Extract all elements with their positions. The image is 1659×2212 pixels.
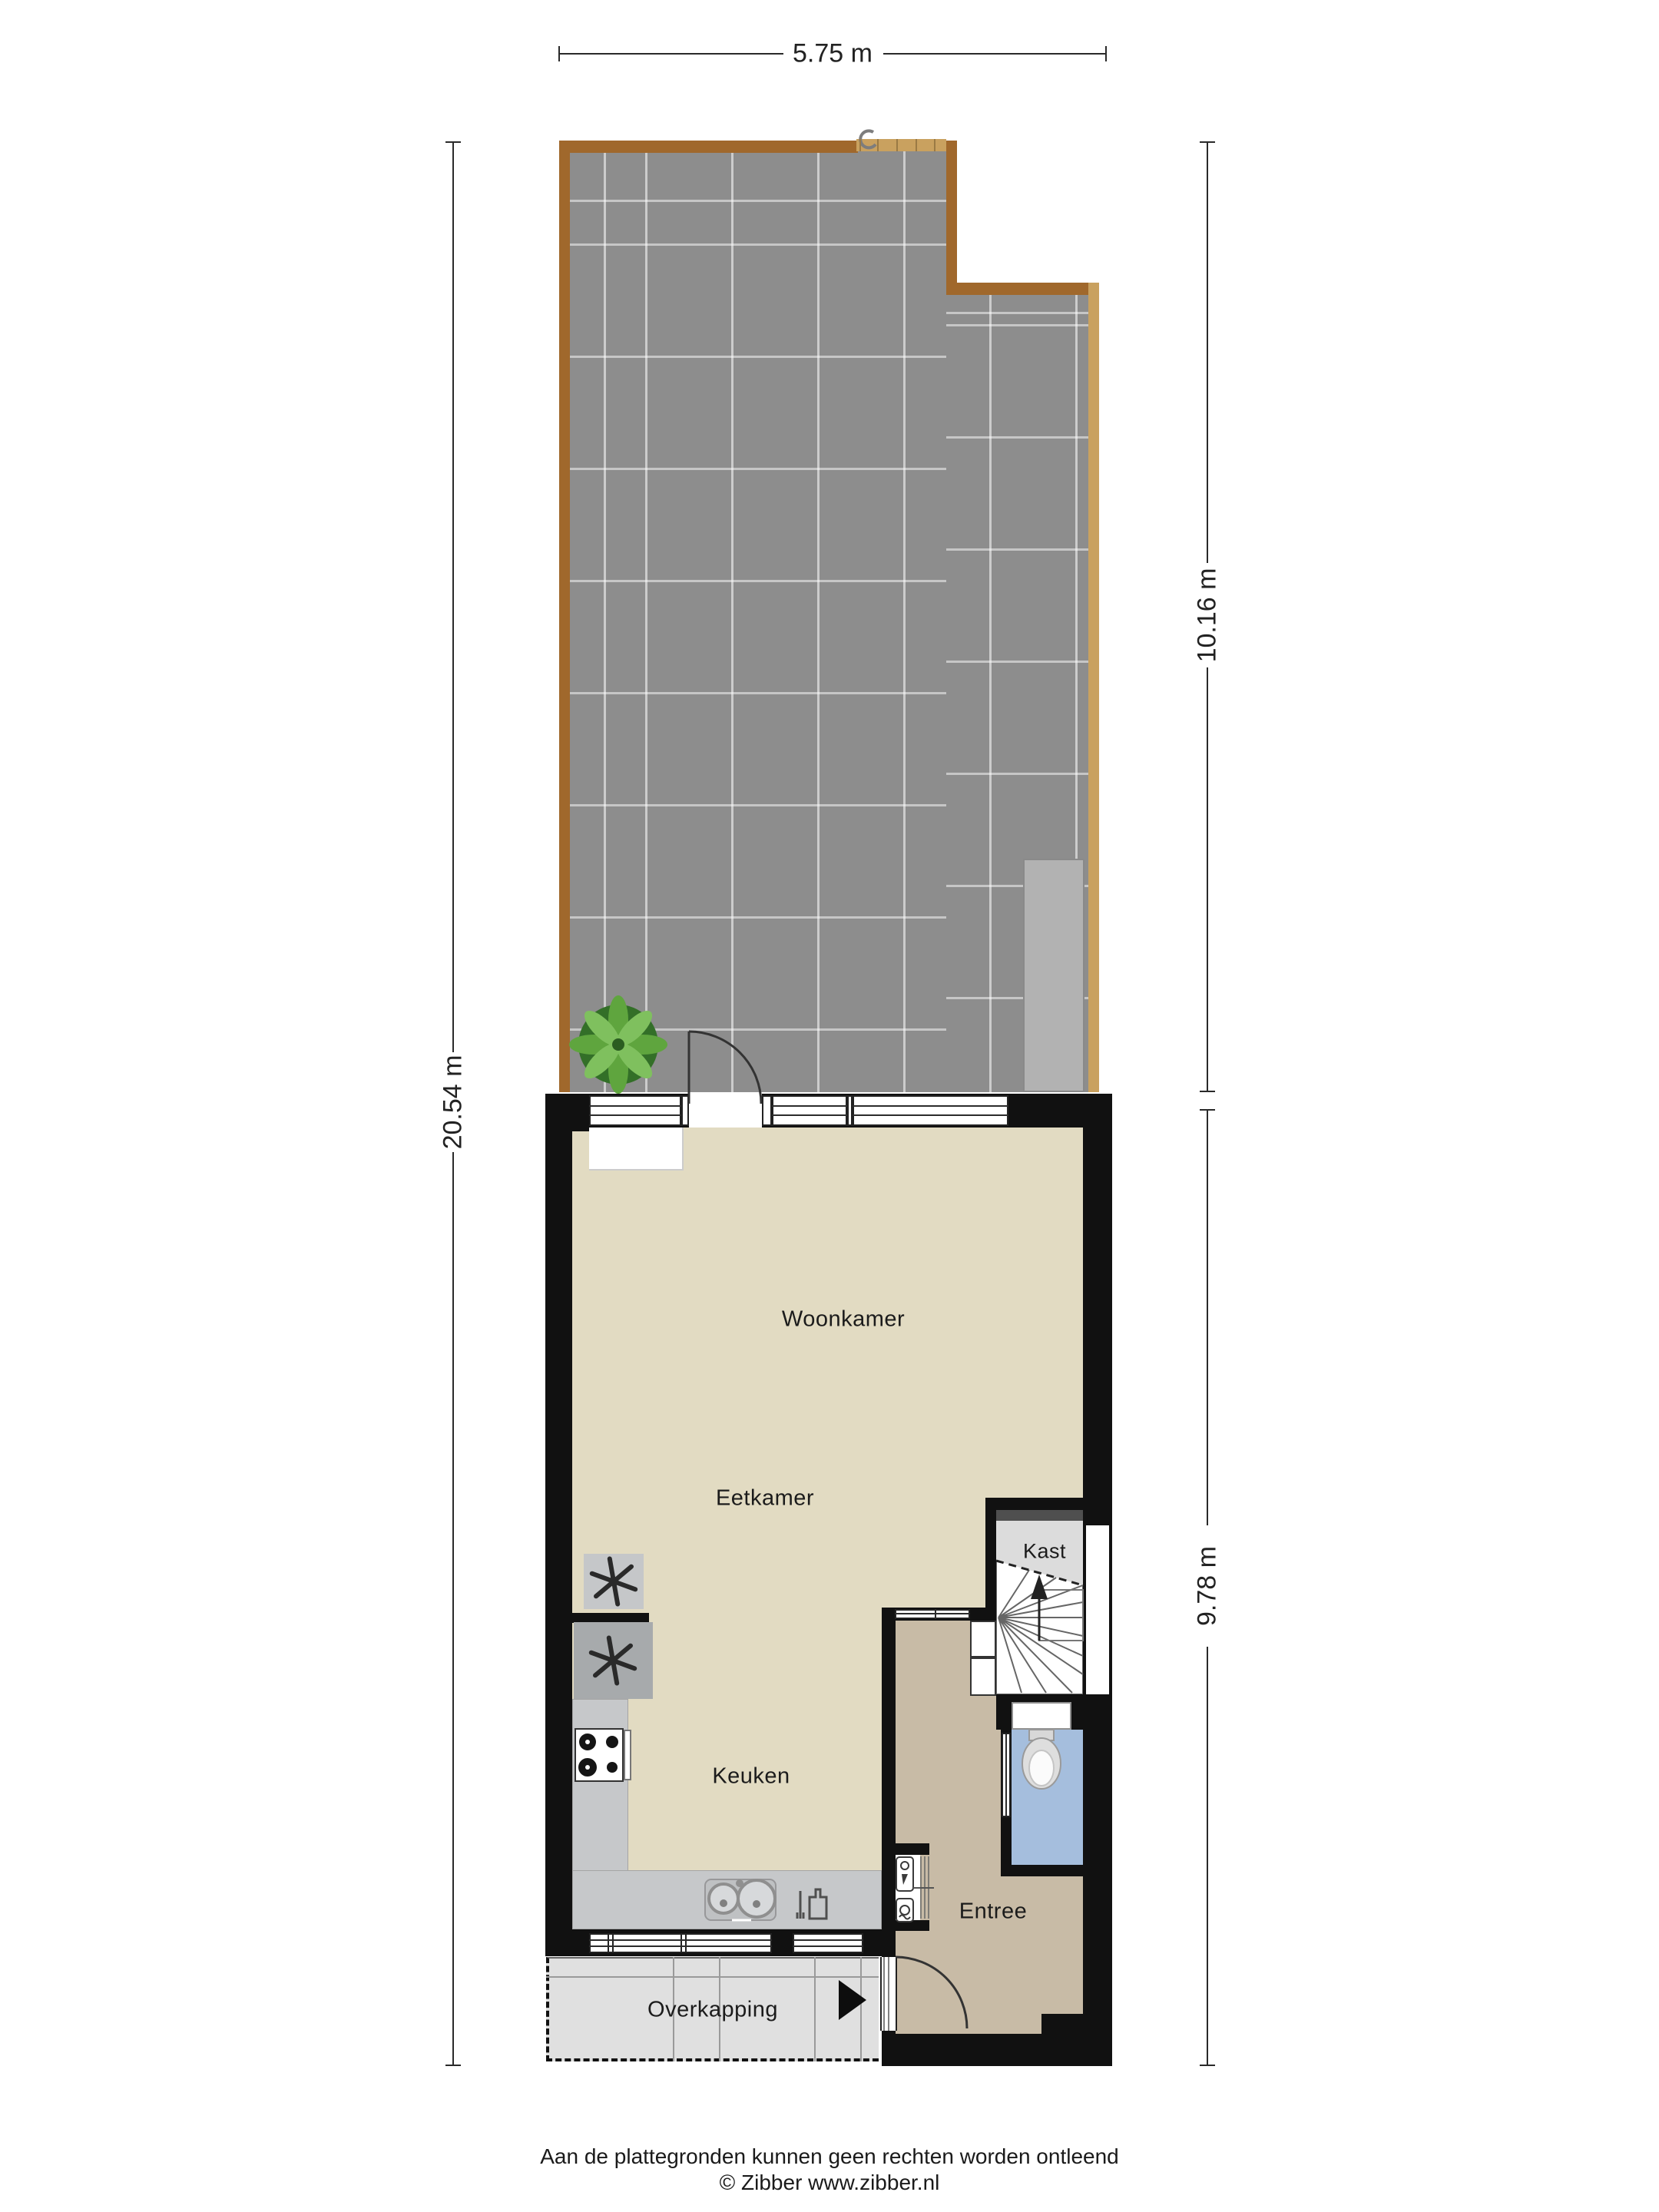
room-label-keuken: Keuken <box>712 1764 790 1790</box>
kitchen-counter-bottom <box>572 1870 882 1929</box>
front-door-opening <box>880 1957 897 2031</box>
window-mullion-top <box>847 1095 853 1126</box>
toilet-cistern-niche <box>1012 1702 1071 1730</box>
garden-border-right-upper <box>946 141 957 294</box>
cooktop-knob-strip <box>624 1730 631 1780</box>
stair-step-2 <box>970 1657 996 1696</box>
room-label-entree: Entree <box>959 1899 1027 1925</box>
dim-rlower-line-b <box>1207 1647 1208 2066</box>
garden-border-notch <box>946 283 1088 295</box>
room-label-eetkamer: Eetkamer <box>716 1486 814 1512</box>
overkapping-beam <box>546 1976 879 1978</box>
window-entree-interior <box>895 1609 970 1619</box>
cooktop <box>575 1728 624 1782</box>
garden-tiles-main <box>561 151 946 1092</box>
footer-copyright: © Zibber www.zibber.nl <box>0 2171 1659 2195</box>
dim-right-upper-label: 10.16 m <box>1193 568 1223 663</box>
dim-top-label: 5.75 m <box>793 39 873 69</box>
floor-toilet <box>1012 1730 1083 1865</box>
dim-rlower-line-a <box>1207 1110 1208 1525</box>
dim-rlower-tick-t <box>1200 1109 1215 1111</box>
dim-top-line-a <box>559 53 783 55</box>
window-garden-left <box>589 1095 681 1126</box>
ventilation-unit-lower <box>574 1622 653 1699</box>
wall-meter-nook-top <box>892 1843 929 1855</box>
garden-border-left <box>559 141 570 1092</box>
wall-interior-stairs <box>985 1498 996 1621</box>
dim-top-tick-r <box>1105 46 1107 61</box>
ventilation-unit-upper <box>584 1554 644 1609</box>
stair-wall-niche <box>1086 1525 1109 1694</box>
stair-step-1 <box>970 1621 996 1657</box>
wall-entree-bottom <box>882 2034 1112 2066</box>
garden-shed <box>1023 859 1084 1092</box>
window-front-mullion-1 <box>608 1933 614 1953</box>
dim-left-tick-t <box>445 141 461 143</box>
footer-disclaimer: Aan de plattegronden kunnen geen rechten… <box>0 2144 1659 2169</box>
room-label-woonkamer: Woonkamer <box>782 1307 905 1333</box>
wall-kast-top <box>985 1498 1112 1510</box>
dim-rupper-tick-t <box>1200 141 1215 143</box>
dim-left-tick-b <box>445 2065 461 2066</box>
kast-wardrobe <box>996 1510 1083 1521</box>
window-front-mullion-2 <box>680 1933 687 1953</box>
wall-left <box>545 1094 572 1956</box>
dim-left-line-a <box>452 142 454 1052</box>
room-label-kast: Kast <box>1023 1540 1066 1564</box>
dim-top-line-b <box>883 53 1106 55</box>
window-sill-niche <box>589 1128 684 1171</box>
wall-entree-notch <box>1041 2014 1086 2034</box>
dim-rupper-line-b <box>1207 667 1208 1092</box>
window-garden-mid <box>772 1095 847 1126</box>
dim-rupper-line-a <box>1207 142 1208 563</box>
window-garden-right <box>853 1095 1008 1126</box>
floorplan-page: 5.75 m 20.54 m 10.16 m 9.78 m Woonkamer … <box>0 0 1659 2212</box>
wall-toilet-bottom <box>1001 1865 1112 1876</box>
meter-nook <box>896 1855 920 1920</box>
garden-fence-top <box>856 139 946 151</box>
garden-border-right-lower <box>1088 283 1099 1092</box>
room-label-overkapping: Overkapping <box>647 1998 778 2023</box>
dim-top-tick-l <box>558 46 560 61</box>
garden-border-top <box>559 141 858 153</box>
dim-left-label: 20.54 m <box>439 1055 469 1150</box>
door-jamb-right <box>762 1095 772 1126</box>
window-front-short <box>793 1933 863 1953</box>
door-jamb-left <box>681 1095 689 1126</box>
dim-left-line-b <box>452 1152 454 2066</box>
garden-door-opening <box>689 1094 762 1128</box>
dim-rlower-tick-b <box>1200 2065 1215 2066</box>
dim-right-lower-label: 9.78 m <box>1193 1546 1223 1626</box>
overkapping-post-4 <box>860 1957 862 2061</box>
dim-rupper-tick-b <box>1200 1091 1215 1092</box>
window-toilet <box>1002 1733 1011 1817</box>
overkapping-post-3 <box>814 1957 816 2061</box>
wall-meter-nook-bottom <box>892 1920 929 1931</box>
